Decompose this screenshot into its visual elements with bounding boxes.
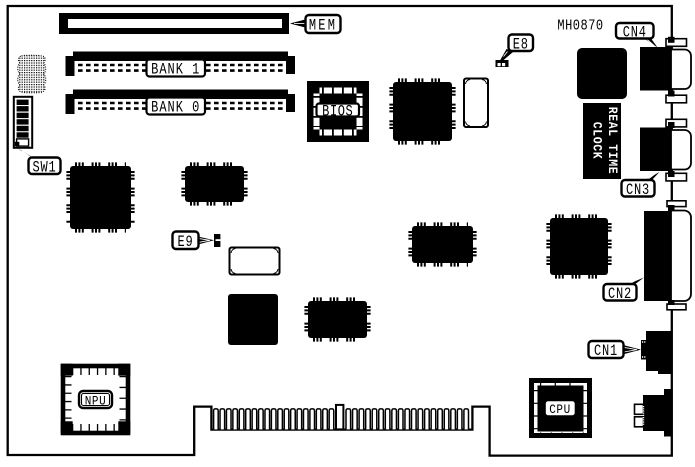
svg-text:BANK 0: BANK 0 bbox=[151, 99, 200, 117]
svg-text:CN4: CN4 bbox=[623, 24, 647, 42]
svg-text:E8: E8 bbox=[513, 36, 529, 54]
svg-text:REAL TIME: REAL TIME bbox=[605, 107, 620, 174]
svg-text:CLOCK: CLOCK bbox=[589, 122, 604, 159]
svg-text:BIOS: BIOS bbox=[322, 103, 353, 121]
svg-text:BANK 1: BANK 1 bbox=[151, 61, 200, 79]
svg-text:CN3: CN3 bbox=[626, 182, 650, 200]
svg-text:E9: E9 bbox=[178, 234, 194, 252]
svg-text:NPU: NPU bbox=[85, 393, 107, 408]
svg-text:MEM: MEM bbox=[309, 17, 337, 35]
svg-text:CN1: CN1 bbox=[594, 343, 618, 361]
svg-text:CN2: CN2 bbox=[608, 286, 632, 304]
svg-text:MH0870: MH0870 bbox=[557, 19, 603, 36]
svg-text:SW1: SW1 bbox=[33, 159, 57, 177]
svg-text:CPU: CPU bbox=[549, 402, 571, 417]
